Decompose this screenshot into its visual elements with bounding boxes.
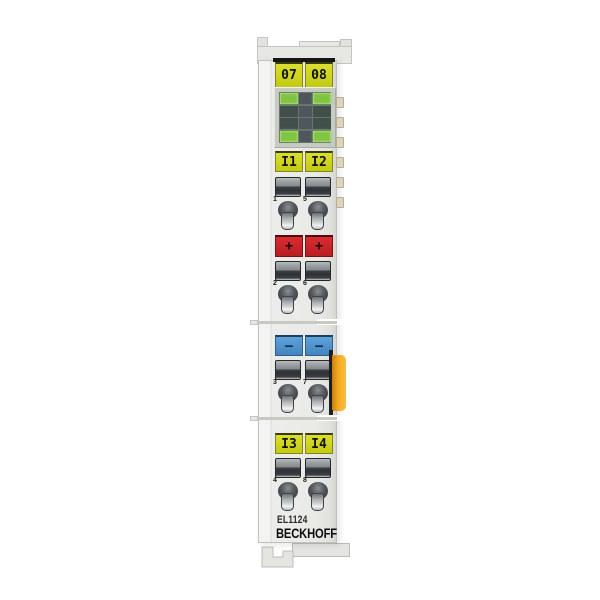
spring-contact bbox=[305, 177, 331, 197]
terminal-point-2: 2 bbox=[275, 261, 301, 317]
input-label-i3: I3 bbox=[275, 433, 303, 454]
led-indicator bbox=[313, 93, 331, 104]
led-indicator bbox=[280, 93, 298, 104]
release-latch bbox=[329, 355, 346, 411]
led-row-3 bbox=[279, 118, 331, 129]
knob-base bbox=[311, 296, 324, 314]
plus-sign: + bbox=[285, 239, 293, 254]
channel-label-07: 07 bbox=[275, 62, 303, 88]
knob-base bbox=[281, 493, 294, 511]
seam-tab bbox=[250, 416, 258, 421]
brand-logo: BECKHOFF bbox=[276, 525, 337, 541]
channel-label-text: 08 bbox=[311, 68, 327, 83]
ebus-contact bbox=[336, 117, 344, 128]
terminal-point-7: 7 bbox=[305, 360, 331, 416]
spring-contact bbox=[305, 360, 331, 380]
led-divider bbox=[299, 106, 312, 117]
terminal-point-6: 6 bbox=[305, 261, 331, 317]
knob-base bbox=[281, 212, 294, 230]
housing-seam bbox=[258, 321, 337, 324]
contact-number: 1 bbox=[273, 196, 277, 204]
minus-sign: – bbox=[285, 339, 293, 354]
led-indicator bbox=[313, 118, 331, 129]
input-label-text: I1 bbox=[281, 155, 297, 170]
wire-release-knob bbox=[278, 384, 298, 414]
minus-sign: – bbox=[315, 339, 323, 354]
din-rail-hook bbox=[260, 545, 296, 569]
spring-contact bbox=[305, 261, 331, 281]
input-label-text: I2 bbox=[311, 155, 327, 170]
ebus-contact bbox=[336, 97, 344, 108]
led-window bbox=[279, 92, 331, 143]
seam-tab bbox=[250, 320, 258, 325]
spring-contact bbox=[275, 458, 301, 478]
input-label-i4: I4 bbox=[305, 433, 333, 454]
wire-release-knob bbox=[308, 201, 328, 231]
ebus-contact bbox=[336, 197, 344, 208]
input-label-text: I4 bbox=[311, 437, 327, 452]
knob-base bbox=[311, 212, 324, 230]
ebus-contact bbox=[336, 177, 344, 188]
led-row-2 bbox=[279, 106, 331, 117]
contact-number: 4 bbox=[273, 477, 277, 485]
contact-number: 7 bbox=[303, 379, 307, 387]
terminal-point-4: 4 bbox=[275, 458, 301, 514]
product-image-el1124: 07 08 I1 bbox=[0, 0, 600, 600]
led-row-4 bbox=[279, 131, 331, 142]
contact-number: 2 bbox=[273, 280, 277, 288]
input-label-text: I3 bbox=[281, 437, 297, 452]
input-label-i1: I1 bbox=[275, 151, 303, 172]
plus-sign: + bbox=[315, 239, 323, 254]
spring-contact bbox=[275, 261, 301, 281]
polarity-label-plus: + bbox=[305, 235, 333, 257]
wire-release-knob bbox=[308, 285, 328, 315]
spring-contact bbox=[275, 177, 301, 197]
led-block bbox=[274, 87, 336, 148]
polarity-label-minus: – bbox=[275, 335, 303, 356]
led-indicator bbox=[280, 131, 298, 142]
housing-seam bbox=[258, 417, 337, 420]
terminal-point-3: 3 bbox=[275, 360, 301, 416]
terminal-point-8: 8 bbox=[305, 458, 331, 514]
polarity-label-plus: + bbox=[275, 235, 303, 257]
contact-number: 8 bbox=[303, 477, 307, 485]
wire-release-knob bbox=[308, 482, 328, 512]
terminal-point-1: 1 bbox=[275, 177, 301, 233]
wire-release-knob bbox=[278, 285, 298, 315]
led-row-1 bbox=[279, 93, 331, 104]
spring-contact bbox=[275, 360, 301, 380]
wire-release-knob bbox=[278, 482, 298, 512]
input-label-i2: I2 bbox=[305, 151, 333, 172]
ebus-contact bbox=[336, 157, 344, 168]
ebus-contact bbox=[336, 137, 344, 148]
knob-base bbox=[311, 395, 324, 413]
knob-base bbox=[281, 296, 294, 314]
led-indicator bbox=[280, 106, 298, 117]
channel-label-08: 08 bbox=[305, 62, 333, 88]
wire-release-knob bbox=[308, 384, 328, 414]
led-divider bbox=[299, 93, 312, 104]
led-divider bbox=[299, 118, 312, 129]
led-divider bbox=[299, 131, 312, 142]
channel-label-text: 07 bbox=[281, 68, 297, 83]
knob-base bbox=[281, 395, 294, 413]
wire-release-knob bbox=[278, 201, 298, 231]
din-rail-foot bbox=[292, 543, 350, 557]
led-indicator bbox=[280, 118, 298, 129]
contact-number: 5 bbox=[303, 196, 307, 204]
led-indicator bbox=[313, 106, 331, 117]
contact-number: 3 bbox=[273, 379, 277, 387]
knob-base bbox=[311, 493, 324, 511]
spring-contact bbox=[305, 458, 331, 478]
contact-number: 6 bbox=[303, 280, 307, 288]
terminal-point-5: 5 bbox=[305, 177, 331, 233]
ebus-contact-column bbox=[336, 97, 344, 208]
led-indicator bbox=[313, 131, 331, 142]
